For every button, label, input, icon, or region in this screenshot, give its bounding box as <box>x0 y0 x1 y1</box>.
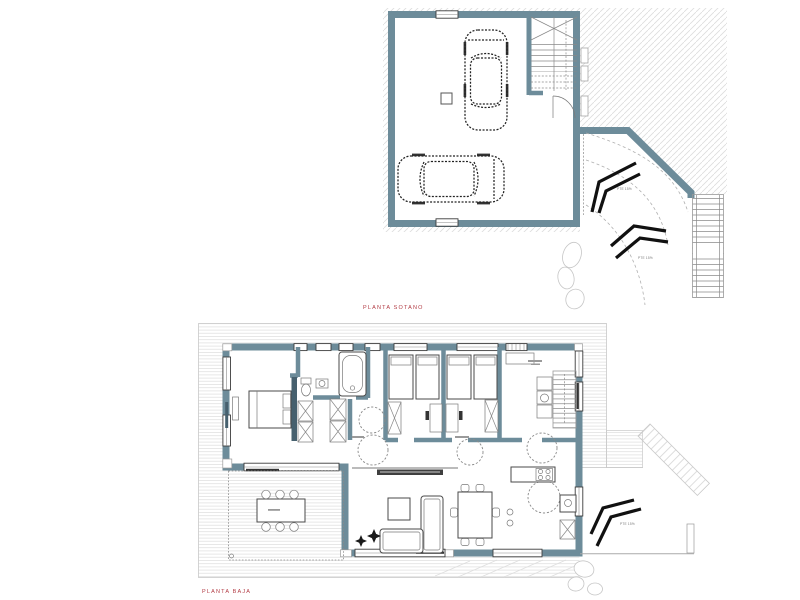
bathtub <box>339 352 366 396</box>
top-windows <box>294 344 527 351</box>
appliance <box>537 405 552 418</box>
ramp-slope-label: PTE 15% <box>620 522 635 526</box>
ramp-arrow <box>616 238 668 258</box>
toilet <box>301 378 311 384</box>
dresser <box>233 397 239 420</box>
headboard-wall <box>292 377 298 441</box>
terrace-table <box>257 499 305 522</box>
garage-vent-bottom <box>436 219 458 226</box>
column <box>441 93 452 104</box>
floor-plan-canvas: PTE 15% PTE 15% PLANTA SOTANO <box>0 0 800 600</box>
plan-sheet: PTE 15% PTE 15% PLANTA SOTANO <box>0 0 800 600</box>
appliance <box>537 377 552 390</box>
landscape-rocks <box>556 240 587 312</box>
garage-vent-top <box>436 11 458 18</box>
master-terrace-door <box>244 463 339 471</box>
wardrobe-icon <box>298 422 313 442</box>
wardrobe-icon <box>330 399 346 420</box>
ground-plan-label: PLANTA BAJA <box>202 589 251 595</box>
sofa-seat <box>380 529 423 553</box>
ground-floor-plan: PTE 15% PLANTA BAJA <box>199 324 710 596</box>
wardrobe-icon <box>330 421 346 442</box>
wardrobe-icon <box>560 520 575 539</box>
coffee-table <box>388 498 410 520</box>
wardrobe-icon <box>485 400 498 432</box>
counter <box>506 353 534 364</box>
ramp-slope-label: PTE 15% <box>617 187 632 191</box>
exterior-stairs <box>693 195 724 298</box>
exterior-steps <box>638 424 709 495</box>
desk <box>446 404 458 432</box>
deck-extension <box>607 431 643 468</box>
wardrobe-icon <box>388 402 401 434</box>
desk <box>430 404 442 432</box>
sink-counter <box>560 495 576 512</box>
dining-table <box>458 492 492 538</box>
ramp-slope-label: PTE 15% <box>638 256 653 260</box>
basement-plan-label: PLANTA SOTANO <box>363 305 424 311</box>
basement-plan: PTE 15% PTE 15% PLANTA SOTANO <box>363 8 727 312</box>
wardrobe-icon <box>298 401 313 421</box>
